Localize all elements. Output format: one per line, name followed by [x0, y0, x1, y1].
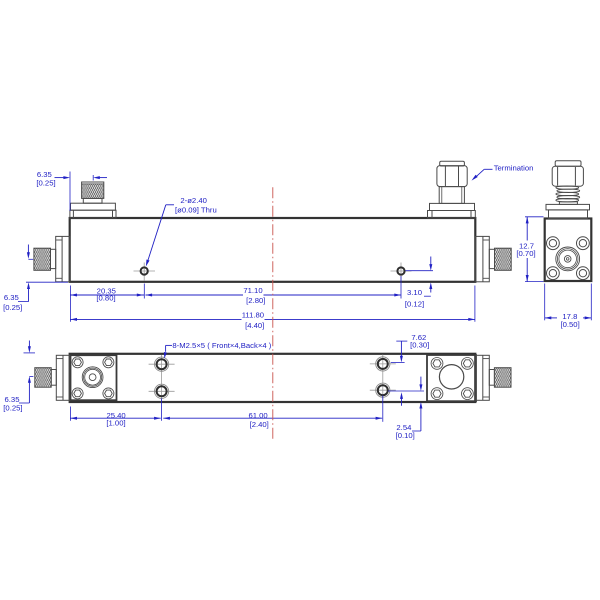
svg-text:[0.25]: [0.25] — [36, 178, 55, 187]
svg-text:[0.30]: [0.30] — [410, 341, 429, 350]
svg-text:[0.10]: [0.10] — [396, 431, 415, 440]
svg-text:[0.50]: [0.50] — [560, 320, 579, 329]
svg-text:71.10: 71.10 — [243, 286, 262, 295]
svg-text:Termination: Termination — [494, 164, 534, 173]
svg-text:61.00: 61.00 — [248, 411, 267, 420]
svg-text:[0.70]: [0.70] — [516, 249, 535, 258]
svg-text:111.80: 111.80 — [242, 311, 264, 320]
svg-text:[1.00]: [1.00] — [106, 419, 125, 428]
svg-text:3.10: 3.10 — [407, 288, 422, 297]
svg-text:[2.80]: [2.80] — [246, 296, 265, 305]
svg-text:[2.40]: [2.40] — [250, 420, 269, 429]
svg-text:2-ø2.40: 2-ø2.40 — [180, 196, 207, 205]
svg-text:[0.12]: [0.12] — [405, 299, 424, 308]
svg-text:[4.40]: [4.40] — [245, 321, 264, 330]
svg-text:[0.80]: [0.80] — [96, 294, 115, 303]
svg-text:6.35: 6.35 — [4, 293, 19, 302]
svg-text:[ø0.09] Thru: [ø0.09] Thru — [175, 205, 217, 214]
svg-text:8-M2.5×5 ( Front×4,Back×4 ): 8-M2.5×5 ( Front×4,Back×4 ) — [172, 341, 271, 350]
svg-text:[0.25]: [0.25] — [3, 403, 22, 412]
svg-text:[0.25]: [0.25] — [3, 303, 22, 312]
